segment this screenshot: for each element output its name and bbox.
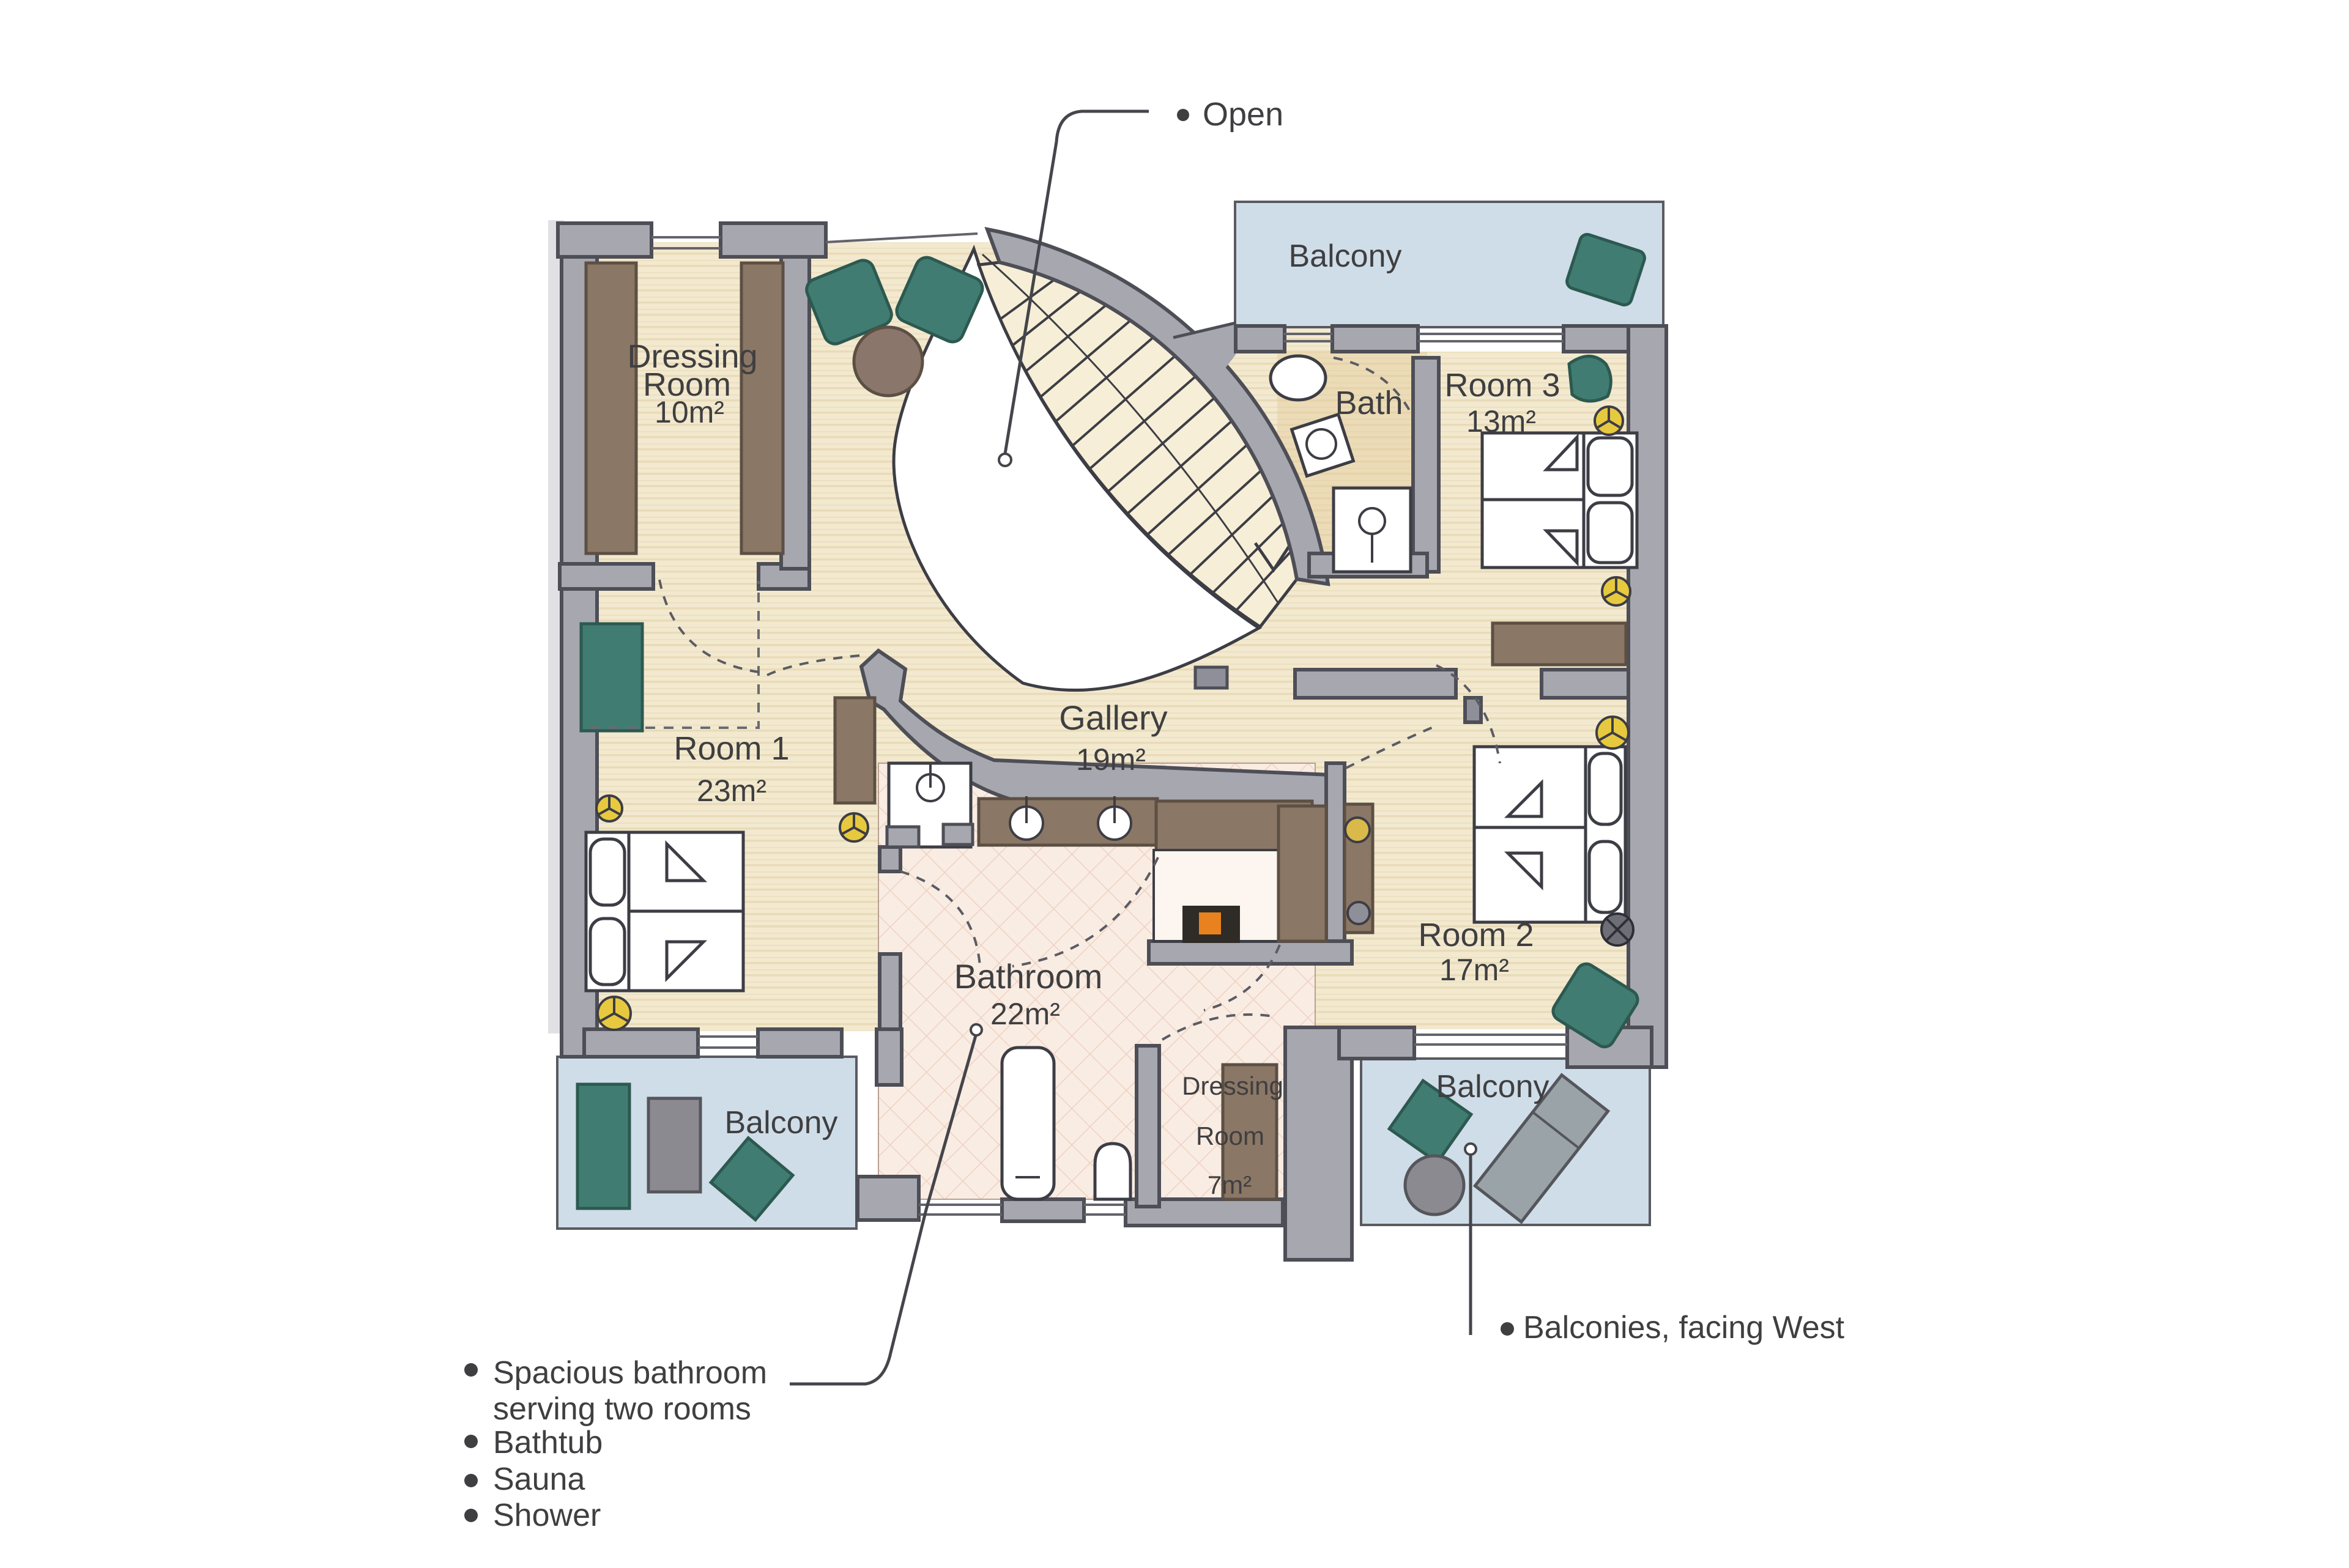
svg-text:Sauna: Sauna xyxy=(493,1462,585,1497)
svg-text:Room: Room xyxy=(1196,1122,1264,1150)
svg-text:Bathtub: Bathtub xyxy=(493,1425,603,1460)
svg-text:23m²: 23m² xyxy=(697,774,766,808)
svg-text:Gallery: Gallery xyxy=(1059,698,1167,737)
svg-text:Bathroom: Bathroom xyxy=(954,957,1103,996)
svg-text:Balcony: Balcony xyxy=(725,1105,838,1141)
svg-text:Room 2: Room 2 xyxy=(1418,917,1534,953)
svg-text:17m²: 17m² xyxy=(1439,953,1509,987)
svg-text:10m²: 10m² xyxy=(655,395,724,429)
svg-text:serving two rooms: serving two rooms xyxy=(493,1391,751,1427)
svg-text:22m²: 22m² xyxy=(990,997,1060,1031)
svg-text:Room 1: Room 1 xyxy=(674,730,789,767)
svg-text:7m²: 7m² xyxy=(1208,1170,1252,1199)
svg-text:Balconies, facing West: Balconies, facing West xyxy=(1523,1310,1845,1345)
svg-text:13m²: 13m² xyxy=(1466,404,1536,438)
svg-text:Balcony: Balcony xyxy=(1436,1069,1549,1104)
svg-text:Open: Open xyxy=(1203,96,1283,133)
svg-text:Bath: Bath xyxy=(1335,385,1403,421)
svg-text:Shower: Shower xyxy=(493,1498,601,1533)
svg-text:Spacious bathroom: Spacious bathroom xyxy=(493,1355,767,1391)
svg-text:Room 3: Room 3 xyxy=(1444,367,1560,404)
svg-text:Balcony: Balcony xyxy=(1289,239,1402,274)
svg-text:19m²: 19m² xyxy=(1076,742,1146,777)
svg-text:Dressing: Dressing xyxy=(1182,1071,1283,1100)
